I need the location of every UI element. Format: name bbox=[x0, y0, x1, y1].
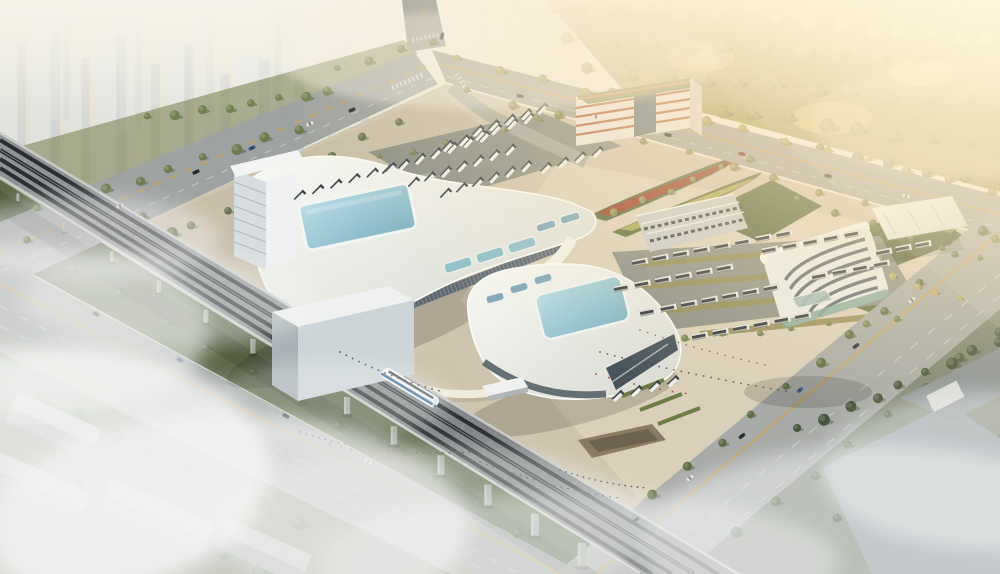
aerial-scene: Aerial rendering of a high-speed railway… bbox=[0, 0, 1000, 574]
rendering-canvas: Aerial rendering of a high-speed railway… bbox=[0, 0, 1000, 574]
